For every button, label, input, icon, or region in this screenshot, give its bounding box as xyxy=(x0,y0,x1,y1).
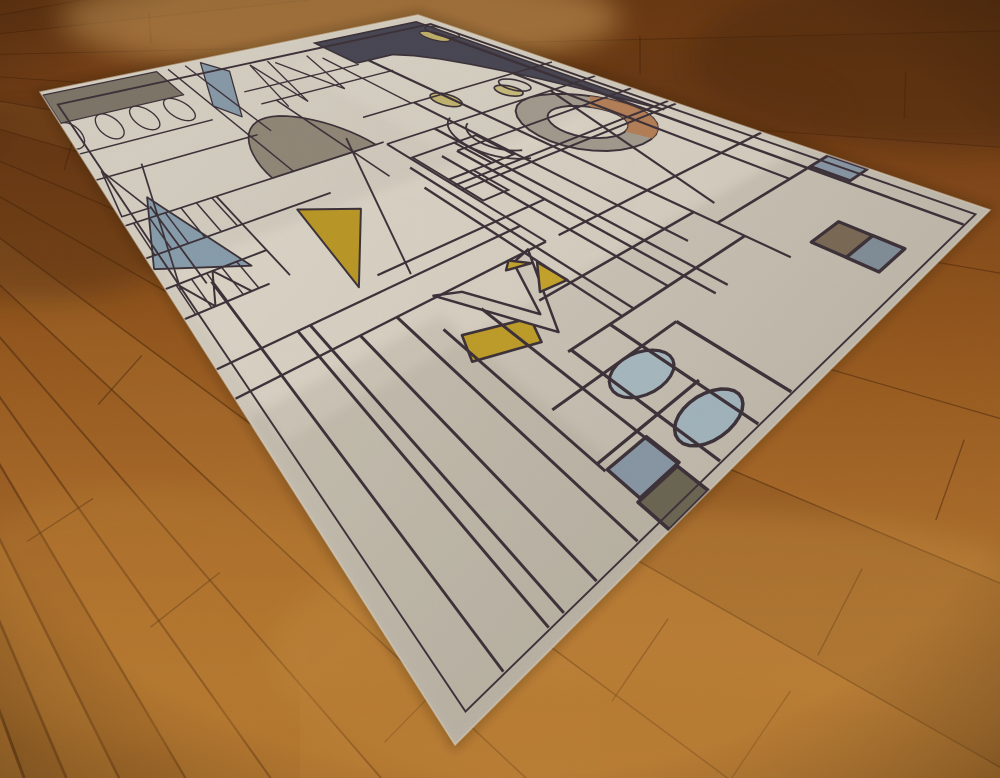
photo-vignette xyxy=(0,0,1000,778)
rug-photo-rendering xyxy=(0,0,1000,778)
photo xyxy=(0,0,1000,778)
